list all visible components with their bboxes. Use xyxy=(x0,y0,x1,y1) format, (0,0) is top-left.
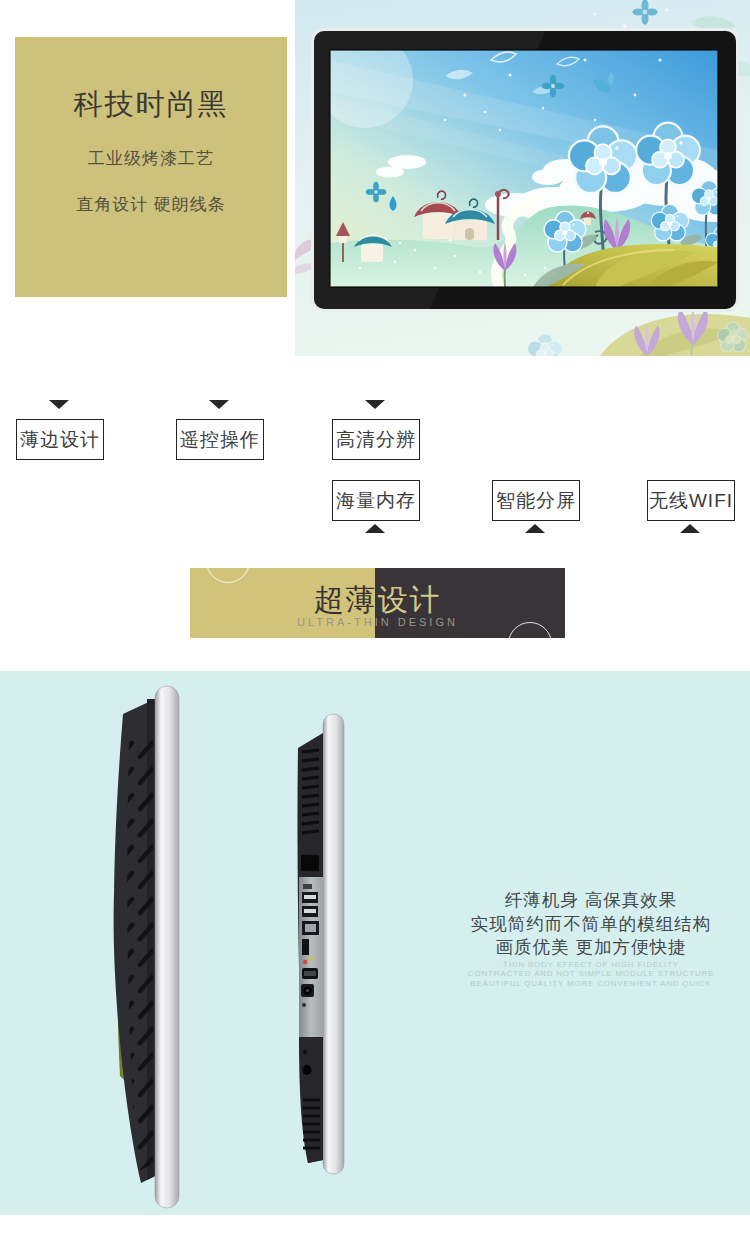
arrow-down-icon xyxy=(49,400,69,409)
tablet-screen xyxy=(317,32,750,287)
arrow-down-icon xyxy=(365,400,385,409)
copy-line-3: 画质优美 更加方便快捷 xyxy=(426,936,750,960)
feature-badge-mass-storage: 海量内存 xyxy=(332,480,420,521)
device-side-view-right xyxy=(286,708,348,1178)
hero-product-image xyxy=(295,0,750,356)
led-indicator xyxy=(303,960,308,965)
vent-slits-bottom xyxy=(303,1100,320,1148)
hero-subtitle-2: 直角设计 硬朗线条 xyxy=(15,193,287,216)
copy-en-line-1: THIN BODY EFFECT OF HIGH FIDELITY xyxy=(426,960,750,970)
copy-en-line-2: CONTRACTED AND NOT SIMPLE MODULE STRUCTU… xyxy=(426,969,750,979)
feature-badge-hd-resolution: 高清分辨 xyxy=(332,419,420,460)
sd-card-slot xyxy=(302,939,309,955)
hero-subtitle-1: 工业级烤漆工艺 xyxy=(15,147,287,170)
ultra-thin-banner: 超薄设计 ULTRA-THIN DESIGN xyxy=(190,568,565,638)
page-title: 科技时尚黑 xyxy=(15,85,287,125)
arrow-up-icon xyxy=(680,524,700,533)
copy-en-line-3: BEAUTIFUL QUALITY MORE CONVENIENT AND QU… xyxy=(426,979,750,989)
banner-subtitle: ULTRA-THIN DESIGN xyxy=(190,616,565,628)
tablet-front-illustration xyxy=(295,0,750,356)
banner-title-gold-part: 设计 xyxy=(378,583,442,616)
arrow-up-icon xyxy=(525,524,545,533)
led-indicator xyxy=(309,957,313,961)
feature-badge-wireless-wifi: 无线WIFI xyxy=(647,480,735,521)
thin-design-section: 纤薄机身 高保真效果 实现简约而不简单的模组结构 画质优美 更加方便快捷 THI… xyxy=(0,671,750,1215)
copy-line-2: 实现简约而不简单的模组结构 xyxy=(426,913,750,937)
arrow-up-icon xyxy=(365,524,385,533)
hero-text-panel: 科技时尚黑 工业级烤漆工艺 直角设计 硬朗线条 xyxy=(15,37,287,297)
thin-design-copy: 纤薄机身 高保真效果 实现简约而不简单的模组结构 画质优美 更加方便快捷 THI… xyxy=(426,889,750,988)
arrow-down-icon xyxy=(209,400,229,409)
banner-title: 超薄设计 xyxy=(190,580,565,621)
feature-badge-thin-edge: 薄边设计 xyxy=(16,419,104,460)
feature-badge-remote-control: 遥控操作 xyxy=(176,419,264,460)
tablet-device xyxy=(311,28,750,312)
banner-title-dark-part: 超薄 xyxy=(314,583,378,616)
copy-line-1: 纤薄机身 高保真效果 xyxy=(426,889,750,913)
device-side-view-left xyxy=(97,684,189,1210)
feature-badge-smart-split-screen: 智能分屏 xyxy=(492,480,580,521)
